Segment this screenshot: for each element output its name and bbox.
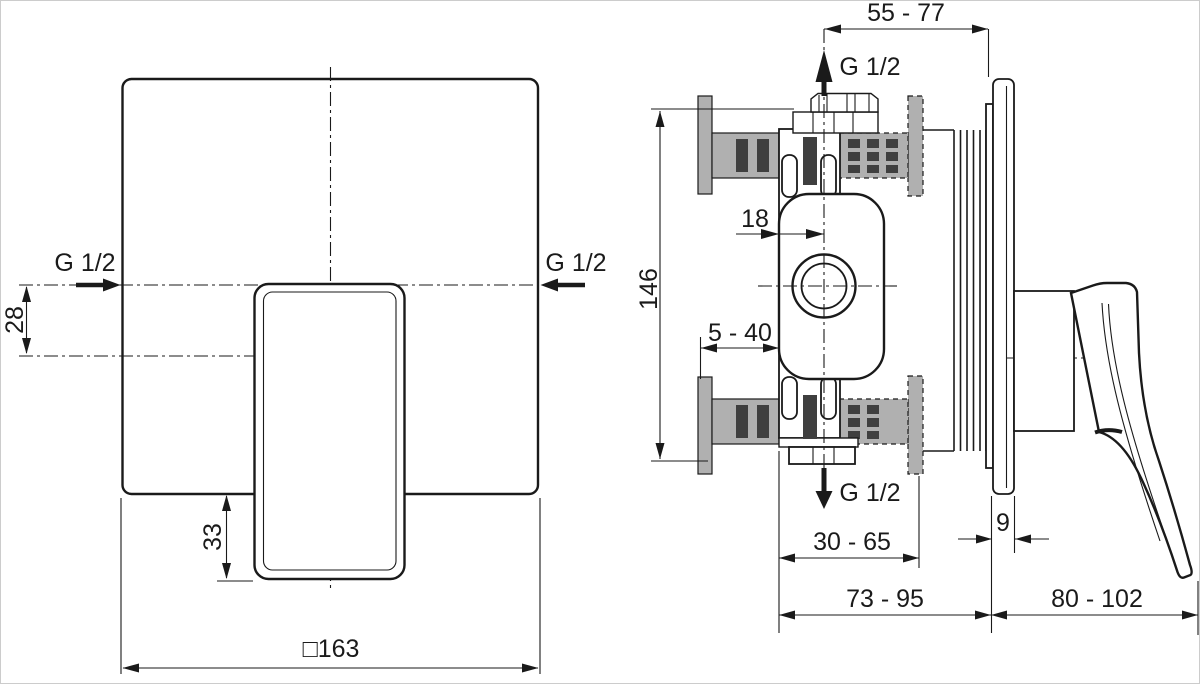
thread-sleeve [923, 130, 986, 451]
dim-text-18: 18 [741, 205, 769, 233]
dim-text-163: □163 [303, 635, 360, 663]
outlet-top: G 1/2 [816, 50, 901, 96]
dim-text-28: 28 [1, 306, 29, 334]
bracket-slot-dark [803, 395, 817, 439]
dim-arrow-right-icon [522, 664, 539, 673]
inlet-right: G 1/2 [541, 249, 607, 292]
dim-handle-projection: 80 - 102 [991, 581, 1198, 635]
inlet-right-label: G 1/2 [545, 249, 606, 277]
anchor-block [736, 405, 748, 438]
wall-edge-bottom-left [698, 377, 712, 474]
outlet-top-arrow-icon [816, 50, 833, 82]
dim-finished-wall-range: 5 - 40 [701, 319, 780, 379]
dim-text-33: 33 [199, 523, 227, 551]
dim-text-9: 9 [996, 509, 1010, 537]
anchor-block [736, 139, 748, 172]
dim-text-30-65: 30 - 65 [813, 528, 891, 556]
technical-drawing-canvas: G 1/2 G 1/2 28 33 [0, 0, 1200, 684]
inlet-right-arrow-icon [541, 279, 559, 292]
outlet-bottom-label: G 1/2 [839, 479, 900, 507]
dim-arrow-left-icon [123, 664, 140, 673]
anchor-block [757, 405, 769, 438]
escutcheon-back-flange [986, 104, 993, 468]
dim-text-55-77: 55 - 77 [867, 1, 945, 27]
bracket-slot [782, 155, 797, 197]
dim-arrow-down-icon [22, 338, 31, 354]
front-view: G 1/2 G 1/2 28 33 [1, 67, 607, 674]
installation-drawing: G 1/2 G 1/2 28 33 [1, 1, 1200, 685]
wall-edge-bottom-right [908, 376, 923, 474]
anchor-block [757, 139, 769, 172]
inlet-left-arrow-icon [103, 279, 121, 292]
bracket-foot [779, 438, 858, 447]
dim-arrow-up-icon [222, 495, 231, 511]
side-view: G 1/2 G 1/2 55 - 77 146 [635, 1, 1198, 635]
knurled-nut [811, 94, 878, 113]
dim-text-80-102: 80 - 102 [1051, 585, 1143, 613]
handle-front [255, 284, 405, 579]
wall-edge-top-right [908, 96, 923, 196]
escutcheon-plate-side [993, 79, 1014, 494]
outlet-bottom: G 1/2 [816, 468, 901, 509]
dim-inlet-to-handle-axis: 28 [1, 286, 31, 354]
dim-body-face-to-plate: 73 - 95 [779, 585, 991, 620]
bracket-slot [782, 377, 797, 419]
dim-arrow-up-icon [22, 286, 31, 302]
bracket-slot [821, 377, 836, 419]
dim-handle-below-plate: 33 [199, 495, 253, 581]
outlet-bottom-arrow-icon [816, 491, 833, 509]
dim-arrow-down-icon [222, 563, 231, 579]
bottom-hex-nut [789, 447, 855, 464]
dim-text-73-95: 73 - 95 [846, 585, 924, 613]
bracket-slot-dark [803, 137, 817, 185]
bracket-slot [821, 155, 836, 197]
outlet-top-label: G 1/2 [839, 53, 900, 81]
inlet-left-label: G 1/2 [54, 249, 115, 277]
dim-text-5-40: 5 - 40 [708, 319, 772, 347]
wall-edge-top-left [698, 96, 712, 194]
dim-text-146: 146 [635, 268, 663, 310]
top-hex-adapter [793, 112, 878, 133]
cartridge-sleeve [1014, 291, 1074, 431]
